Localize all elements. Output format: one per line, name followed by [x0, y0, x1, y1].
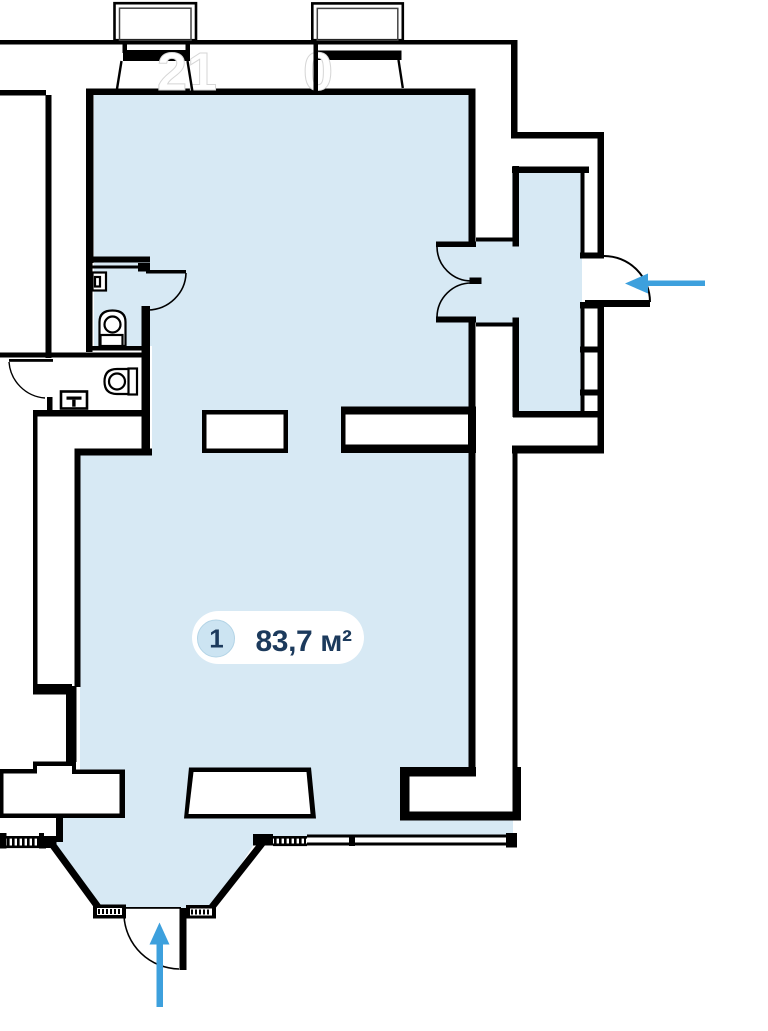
svg-text:21: 21 [157, 42, 217, 102]
svg-text:83,7 м²: 83,7 м² [256, 625, 353, 658]
svg-text:1: 1 [209, 624, 223, 654]
svg-text:0: 0 [303, 42, 333, 102]
